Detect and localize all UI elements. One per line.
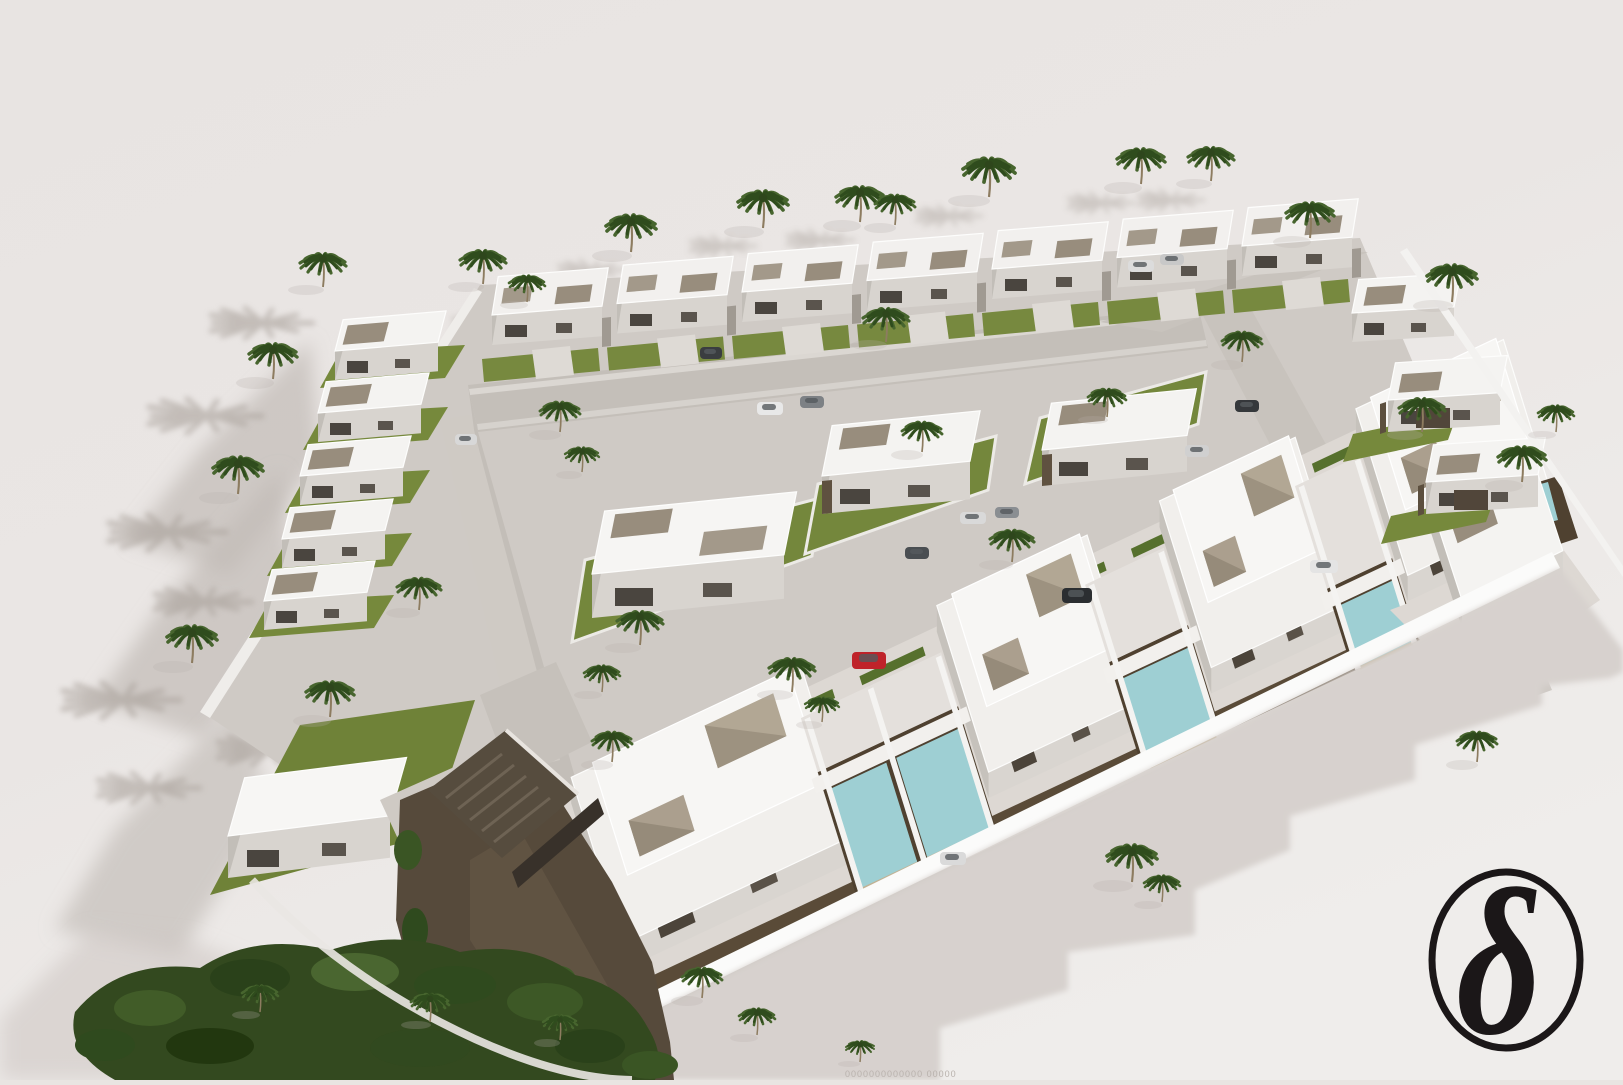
svg-text:δ: δ [1457, 845, 1542, 1078]
svg-text:0000000000000 00000: 0000000000000 00000 [845, 1069, 957, 1079]
